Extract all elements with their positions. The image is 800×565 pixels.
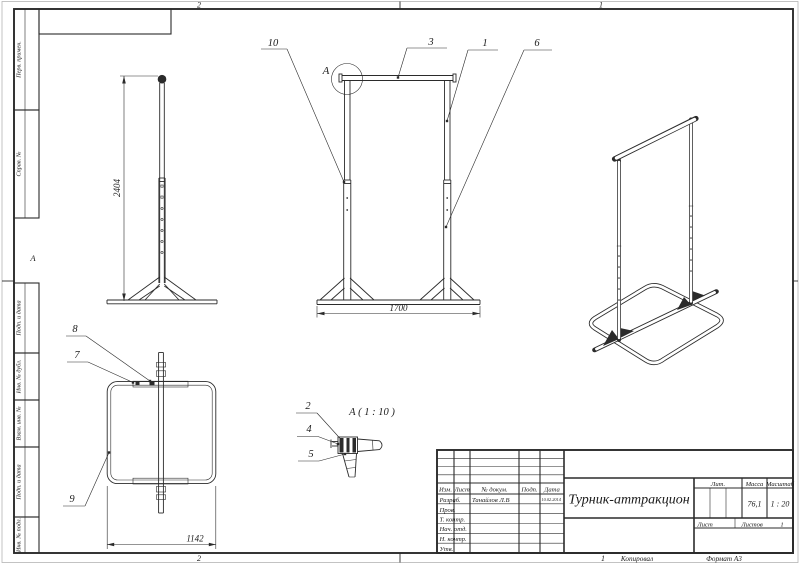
side-label-vzam-inv-no: Взам. инв. № <box>16 406 23 440</box>
detail-circle-A <box>332 64 363 95</box>
callout-6: 6 <box>445 38 552 228</box>
tb-col-doc: № докум. <box>480 487 508 494</box>
zone-top-left: 2 <box>197 1 201 10</box>
tb-mass-label: Масса <box>745 481 764 488</box>
top-left-designation-box <box>39 9 171 34</box>
zone-top-right: 1 <box>599 1 603 10</box>
callout-3: 3 <box>397 37 447 79</box>
callout-10: 10 <box>261 38 345 183</box>
dim-1142: 1142 <box>107 486 216 549</box>
tb-col-sign: Подп. <box>520 487 538 494</box>
callout-5: 5 <box>298 449 346 461</box>
dim-2404-text: 2404 <box>112 179 122 198</box>
callout-3-text: 3 <box>427 37 433 48</box>
dim-1700-text: 1700 <box>390 303 409 313</box>
side-label-podp-i-data-2: Подп. и дата <box>16 464 23 500</box>
bar-end-circle <box>158 75 167 84</box>
zone-bottom-left: 2 <box>197 554 201 563</box>
front-view: 1700 А 10 3 1 6 <box>261 37 552 318</box>
tb-col-izm: Изм. <box>438 487 452 494</box>
tb-row-razrab: Разраб. <box>439 497 462 504</box>
callout-7: 7 <box>67 350 134 384</box>
tb-sheets-label: Листов <box>740 522 763 529</box>
document-title: Турник-аттракцион <box>568 493 689 508</box>
tb-scale-value: 1 : 20 <box>771 500 790 509</box>
callout-2: 2 <box>296 401 343 441</box>
copied-label: Копировал <box>620 555 653 563</box>
zone-left-letter: А <box>29 253 36 263</box>
title-block: Изм. Лист № докум. Подп. Дата Разраб. Та… <box>437 450 795 553</box>
dim-1142-text: 1142 <box>186 534 204 544</box>
side-label-sprav-no: Справ. № <box>16 151 23 176</box>
tb-row-nach-otd: Нач. отд. <box>439 526 468 533</box>
tb-sheets-value: 1 <box>780 522 783 529</box>
callout-8-text: 8 <box>72 324 78 335</box>
callout-2-text: 2 <box>305 401 311 412</box>
tb-lit-label: Лит. <box>710 481 726 488</box>
tb-sheet-label: Лист <box>696 522 713 529</box>
callout-1: 1 <box>446 38 498 122</box>
detail-title: А ( 1 : 10 ) <box>348 407 395 418</box>
tb-row-utv: Утв. <box>440 546 454 553</box>
tb-row-t-kontr: Т. контр. <box>440 517 466 524</box>
tb-row-prov: Пров. <box>439 507 456 514</box>
zone-bottom-right: 1 <box>601 554 605 563</box>
callout-10-text: 10 <box>268 38 279 49</box>
side-view: 2404 <box>107 75 217 304</box>
callout-5-text: 5 <box>308 449 313 460</box>
format-label: Формат А3 <box>706 555 742 563</box>
tb-razrab-date: 10.02.2014 <box>542 497 562 502</box>
callout-6-text: 6 <box>534 38 540 49</box>
callout-9-text: 9 <box>69 494 75 505</box>
callout-4-text: 4 <box>306 424 312 435</box>
detail-view-A: А ( 1 : 10 ) 2 4 <box>296 401 395 477</box>
callout-1-text: 1 <box>482 38 487 49</box>
tb-mass-value: 76,1 <box>748 500 762 509</box>
tb-row-n-kontr: Н. контр. <box>439 536 468 543</box>
tb-razrab-name: Танайлов Л.В <box>472 497 510 504</box>
left-side-strip: Перв. примен. Справ. № Подп. и дата Инв.… <box>14 9 39 553</box>
side-label-inv-no-dubl: Инв. № дубл. <box>16 360 23 395</box>
isometric-view <box>591 119 722 363</box>
drawing-sheet-svg: 2 1 2 1 А Копировал Формат А3 Перв. прим… <box>0 0 800 565</box>
dim-1700: 1700 <box>317 303 480 318</box>
side-label-perv-primen: Перв. примен. <box>16 41 23 79</box>
callout-9: 9 <box>63 451 110 506</box>
detail-mark-A: А <box>322 65 330 77</box>
tb-col-list: Лист <box>453 487 470 494</box>
callout-7-text: 7 <box>74 350 80 361</box>
side-label-podp-i-data-1: Подп. и дата <box>16 300 23 336</box>
callout-4: 4 <box>297 424 339 445</box>
drawing-sheet: 2 1 2 1 А Копировал Формат А3 Перв. прим… <box>0 0 800 565</box>
dim-2404: 2404 <box>112 76 158 301</box>
tb-scale-label: Масштаб <box>765 481 795 488</box>
tb-col-date: Дата <box>543 487 560 494</box>
plan-view: 1142 8 7 9 <box>63 324 216 549</box>
side-label-inv-no-podl: Инв. № подл. <box>16 518 23 553</box>
